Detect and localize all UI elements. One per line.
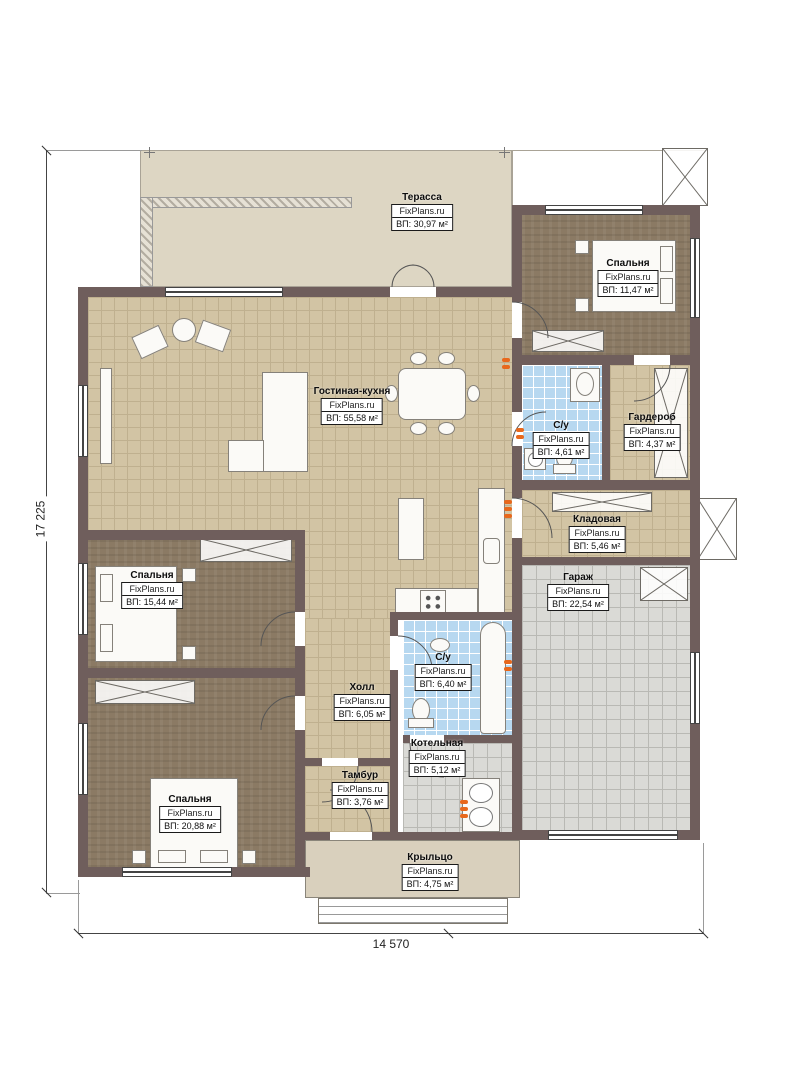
wall xyxy=(88,668,295,678)
dining-chair xyxy=(410,422,427,435)
room-name: Гардероб xyxy=(624,412,681,423)
window xyxy=(78,385,88,457)
dimension-label-vertical: 17 225 xyxy=(33,497,47,542)
room-name: Спальня xyxy=(121,570,183,581)
pillow xyxy=(200,850,228,863)
room-name: Гараж xyxy=(547,572,609,583)
radiator-mark xyxy=(516,428,524,439)
window xyxy=(690,652,700,724)
dimension-line-horizontal xyxy=(78,933,704,934)
room-label-garage: Гараж FixPlans.ru ВП: 22,54 м² xyxy=(547,572,609,612)
door-opening xyxy=(512,498,522,538)
room-area: ВП: 6,40 м² xyxy=(416,678,471,690)
room-name: Спальня xyxy=(597,258,658,269)
room-area: ВП: 11,47 м² xyxy=(598,284,657,296)
room-label-bathroom-center: С/у FixPlans.ru ВП: 6,40 м² xyxy=(415,652,472,692)
dining-chair xyxy=(410,352,427,365)
brand-label: FixPlans.ru xyxy=(322,399,382,412)
wall xyxy=(515,480,690,490)
garage-gate xyxy=(548,830,678,840)
room-label-wardrobe: Гардероб FixPlans.ru ВП: 4,37 м² xyxy=(624,412,681,452)
toilet-tank xyxy=(553,464,576,474)
brand-label: FixPlans.ru xyxy=(534,433,589,446)
window xyxy=(78,723,88,795)
kitchen-island xyxy=(398,498,424,560)
room-label-bathroom-top: С/у FixPlans.ru ВП: 4,61 м² xyxy=(533,420,590,460)
room-area: ВП: 15,44 м² xyxy=(122,596,182,608)
garage-shelving xyxy=(640,567,688,601)
room-area: ВП: 3,76 м² xyxy=(333,796,388,808)
extension-line xyxy=(703,843,704,933)
room-name: С/у xyxy=(533,420,590,431)
room-name: Крыльцо xyxy=(402,852,459,863)
nightstand xyxy=(242,850,256,864)
room-area: ВП: 55,58 м² xyxy=(322,412,382,424)
sofa-chaise xyxy=(228,440,264,472)
room-area: ВП: 30,97 м² xyxy=(392,218,452,230)
brand-label: FixPlans.ru xyxy=(410,751,465,764)
room-label-boiler: Котельная FixPlans.ru ВП: 5,12 м² xyxy=(409,738,466,778)
room-label-porch: Крыльцо FixPlans.ru ВП: 4,75 м² xyxy=(402,852,459,892)
wardrobe-cabinet xyxy=(200,538,292,562)
door-opening xyxy=(295,612,305,646)
wall xyxy=(395,612,512,620)
floor-plan: Терасса FixPlans.ru ВП: 30,97 м² Спальня… xyxy=(0,0,792,1080)
pillow xyxy=(660,246,673,272)
room-label-vestibule: Тамбур FixPlans.ru ВП: 3,76 м² xyxy=(332,770,389,810)
nightstand xyxy=(182,646,196,660)
window xyxy=(545,205,643,215)
floor-terrace xyxy=(140,150,512,287)
room-label-terrace: Терасса FixPlans.ru ВП: 30,97 м² xyxy=(391,192,453,232)
pillow xyxy=(158,850,186,863)
nightstand xyxy=(182,568,196,582)
brand-label: FixPlans.ru xyxy=(122,583,182,596)
terrace-hatched-wall-top xyxy=(140,197,352,208)
brand-label: FixPlans.ru xyxy=(416,665,471,678)
room-name: С/у xyxy=(415,652,472,663)
bathtub xyxy=(480,622,506,734)
side-canopy xyxy=(697,498,737,560)
brand-label: FixPlans.ru xyxy=(403,865,458,878)
extension-line xyxy=(78,880,79,933)
room-area: ВП: 20,88 м² xyxy=(160,820,220,832)
survey-cross-left xyxy=(144,147,155,158)
room-area: ВП: 22,54 м² xyxy=(548,598,608,610)
wall xyxy=(512,205,522,297)
room-name: Тамбур xyxy=(332,770,389,781)
door-opening xyxy=(322,758,358,766)
room-area: ВП: 4,75 м² xyxy=(403,878,458,890)
door-opening xyxy=(512,302,522,338)
door-opening-terrace xyxy=(390,287,436,297)
room-label-hall: Холл FixPlans.ru ВП: 6,05 м² xyxy=(334,682,391,722)
nightstand xyxy=(132,850,146,864)
sofa xyxy=(262,372,308,472)
wall xyxy=(88,530,295,540)
kitchen-sink xyxy=(483,538,500,564)
room-label-bedroom-left: Спальня FixPlans.ru ВП: 15,44 м² xyxy=(121,570,183,610)
wall xyxy=(515,557,690,565)
room-label-bedroom-bottom: Спальня FixPlans.ru ВП: 20,88 м² xyxy=(159,794,221,834)
extension-line xyxy=(46,150,142,151)
tv-console xyxy=(100,368,112,464)
room-label-storage: Кладовая FixPlans.ru ВП: 5,46 м² xyxy=(569,514,626,554)
room-area: ВП: 5,12 м² xyxy=(410,764,465,776)
nightstand xyxy=(575,240,589,254)
coffee-table xyxy=(172,318,196,342)
room-label-living-kitchen: Гостиная-кухня FixPlans.ru ВП: 55,58 м² xyxy=(314,386,391,426)
dining-chair xyxy=(438,352,455,365)
room-area: ВП: 6,05 м² xyxy=(335,708,390,720)
door-opening-entrance xyxy=(330,832,372,840)
wardrobe-cabinet xyxy=(532,330,604,352)
room-name: Котельная xyxy=(409,738,466,749)
toilet-tank xyxy=(408,718,434,728)
brand-label: FixPlans.ru xyxy=(625,425,680,438)
extension-line xyxy=(46,893,80,894)
brand-label: FixPlans.ru xyxy=(548,585,608,598)
brand-label: FixPlans.ru xyxy=(570,527,625,540)
dining-chair xyxy=(467,385,480,402)
door-opening xyxy=(634,355,670,365)
washbasin-bowl xyxy=(576,372,594,396)
room-label-bedroom-top: Спальня FixPlans.ru ВП: 11,47 м² xyxy=(597,258,658,298)
room-area: ВП: 4,61 м² xyxy=(534,446,589,458)
room-name: Холл xyxy=(334,682,391,693)
dimension-label-horizontal: 14 570 xyxy=(369,937,414,951)
porch-steps xyxy=(318,898,508,924)
washbasin-bowl xyxy=(430,638,450,652)
window xyxy=(122,867,232,877)
pillow xyxy=(100,624,113,652)
radiator-mark xyxy=(502,358,510,369)
brand-label: FixPlans.ru xyxy=(333,783,388,796)
room-name: Гостиная-кухня xyxy=(314,386,391,397)
survey-cross-right xyxy=(499,147,510,158)
room-name: Кладовая xyxy=(569,514,626,525)
pergola-column xyxy=(662,148,708,206)
room-name: Терасса xyxy=(391,192,453,203)
wall xyxy=(602,365,610,480)
radiator-mark xyxy=(504,660,512,671)
brand-label: FixPlans.ru xyxy=(598,271,657,284)
terrace-hatched-wall-left xyxy=(140,197,153,287)
storage-shelving xyxy=(552,492,652,512)
radiator-mark xyxy=(504,500,512,518)
wall xyxy=(78,287,512,297)
window xyxy=(165,287,283,297)
brand-label: FixPlans.ru xyxy=(160,807,220,820)
room-area: ВП: 4,37 м² xyxy=(625,438,680,450)
radiator-mark xyxy=(460,800,468,818)
wardrobe-cabinet xyxy=(95,680,195,704)
stove xyxy=(420,590,446,614)
brand-label: FixPlans.ru xyxy=(392,205,452,218)
dining-table xyxy=(398,368,466,420)
dining-chair xyxy=(438,422,455,435)
nightstand xyxy=(575,298,589,312)
room-area: ВП: 5,46 м² xyxy=(570,540,625,552)
brand-label: FixPlans.ru xyxy=(335,695,390,708)
room-name: Спальня xyxy=(159,794,221,805)
door-opening xyxy=(390,636,398,670)
window xyxy=(78,563,88,635)
pillow xyxy=(660,278,673,304)
door-opening xyxy=(295,696,305,730)
pillow xyxy=(100,574,113,602)
window xyxy=(690,238,700,318)
